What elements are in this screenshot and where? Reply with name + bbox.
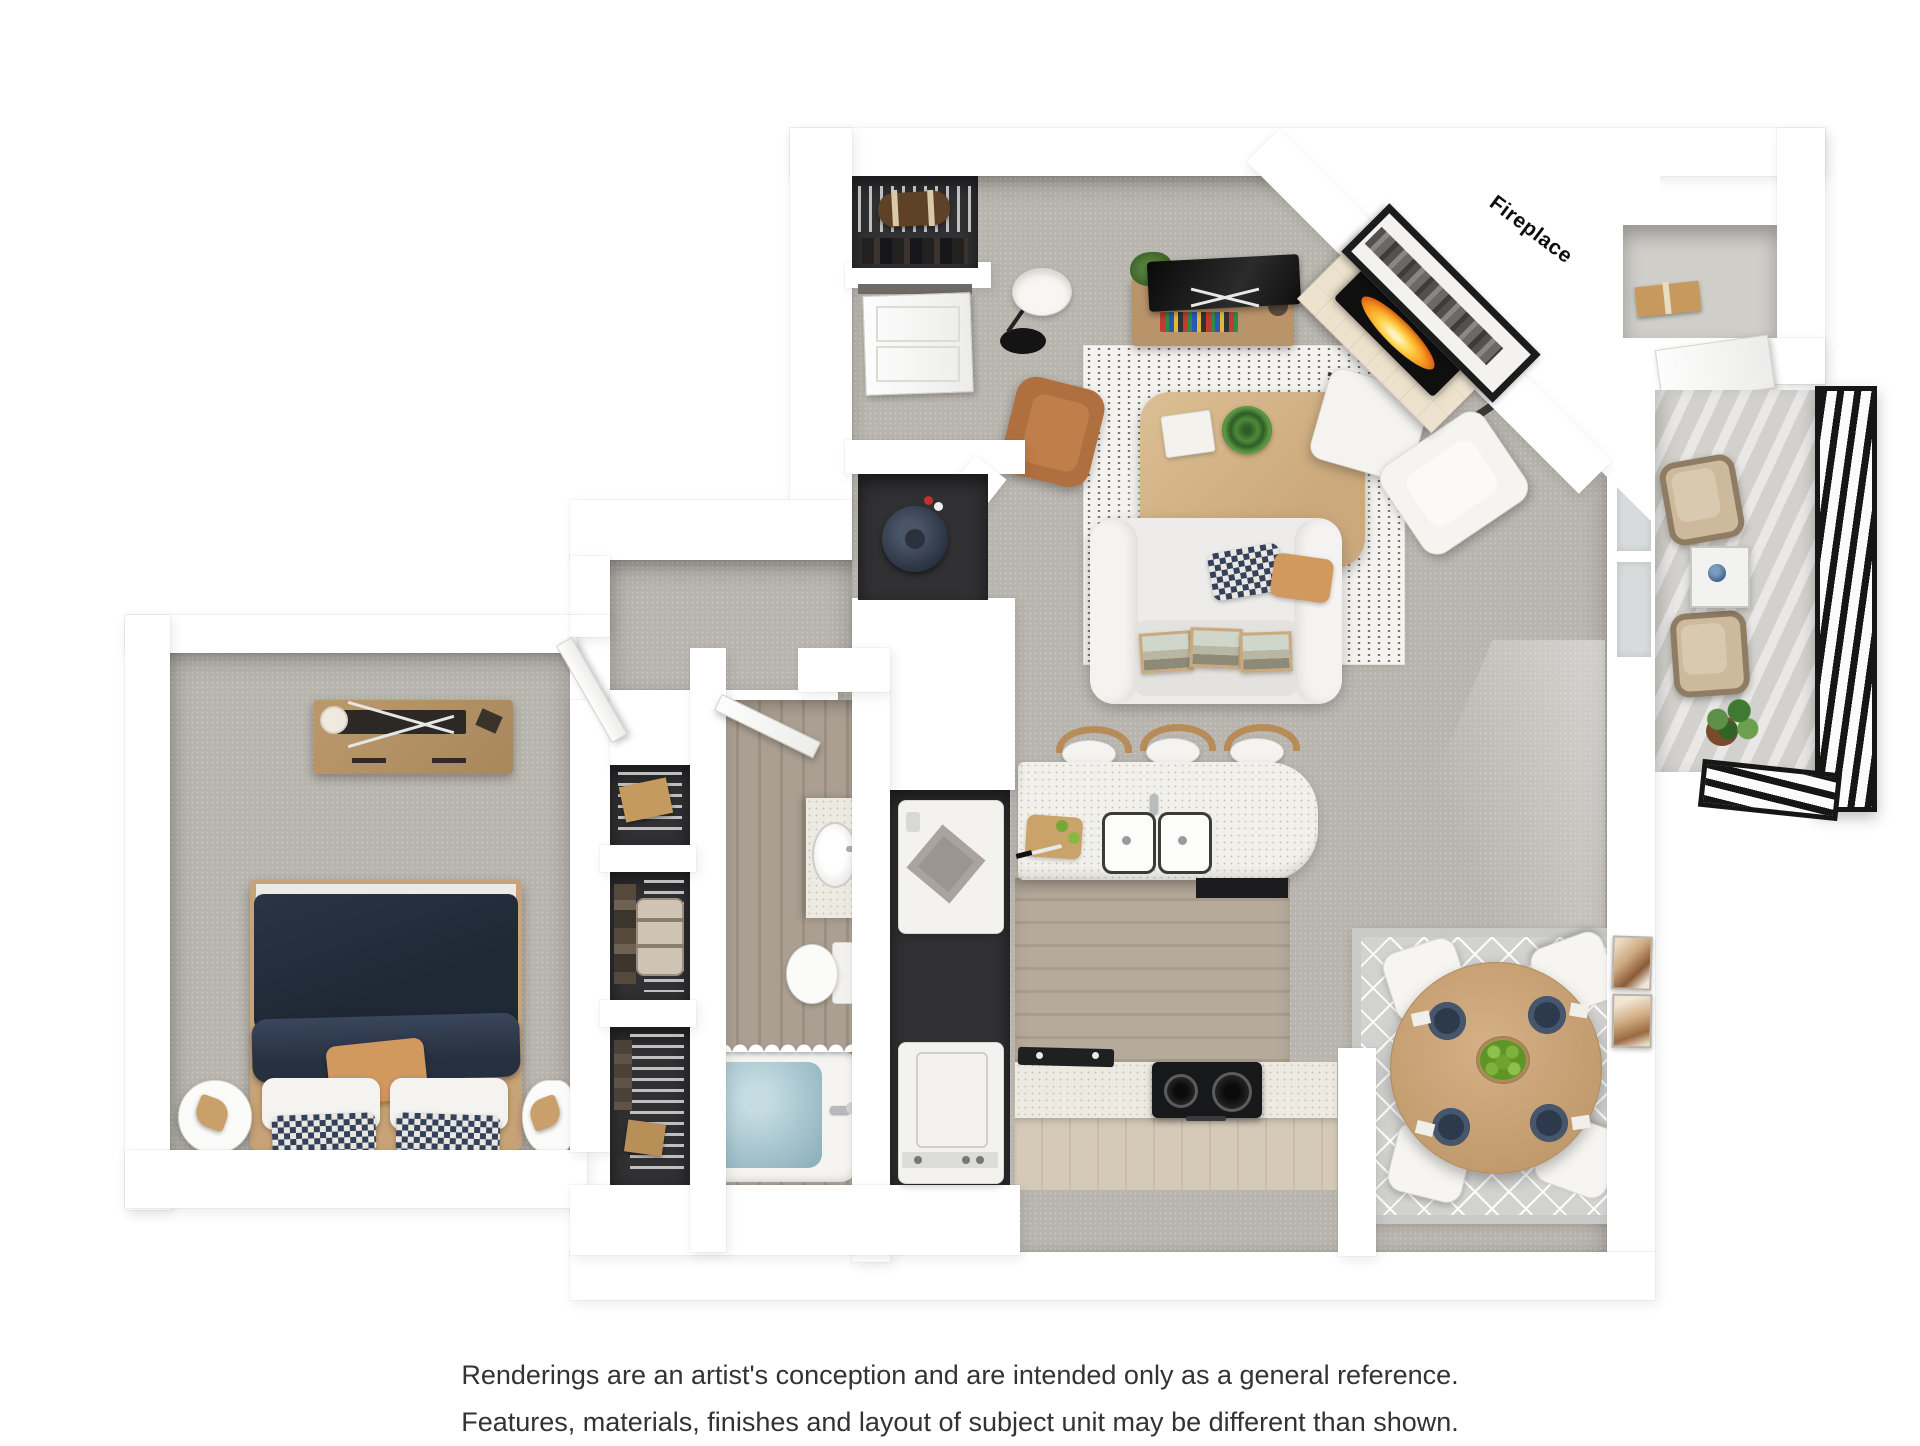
sofa-pillow-tan: [1269, 552, 1335, 604]
appliance-knob: [1092, 1052, 1099, 1059]
desk-cup: [320, 706, 348, 734]
counter-appliance: [1018, 1047, 1114, 1068]
wall-closet-bath-divider: [690, 648, 726, 1252]
dryer-dial: [976, 1156, 984, 1164]
console-books: [1160, 312, 1238, 332]
hanging-clothes: [862, 238, 968, 264]
wall-laundry-left: [852, 690, 890, 1262]
toilet-bowl: [786, 944, 838, 1004]
wall-living-left: [790, 128, 852, 508]
suitcase-strap: [636, 918, 684, 922]
storage-nook-floor: [1623, 225, 1777, 338]
wall-bath-top-right: [798, 648, 890, 692]
floor-lamp-shade: [1012, 268, 1072, 316]
duffel-bag: [877, 190, 951, 228]
disclaimer-line-1: Renderings are an artist's conception an…: [0, 1352, 1920, 1399]
sofa-arm-right: [1294, 518, 1342, 704]
dryer-door: [916, 1052, 988, 1148]
closet-suitcase: [636, 898, 684, 976]
balcony-chair-cushion: [1680, 623, 1727, 676]
lime: [1068, 832, 1080, 844]
wall-bedroom-left: [125, 615, 170, 1210]
cooktop-burner: [1164, 1074, 1198, 1108]
water-heater-valve: [934, 502, 943, 511]
sink-drain: [1122, 836, 1131, 845]
detergent-bottle: [906, 812, 920, 832]
wall-art-abstract: [1612, 994, 1653, 1049]
entry-door-panel: [876, 346, 960, 382]
balcony-table-decor: [1708, 564, 1726, 582]
floor-lamp-base: [1000, 328, 1046, 354]
wall-bedroom-top: [125, 615, 577, 653]
wall-above-hall: [570, 500, 852, 560]
coffee-table-plant: [1222, 406, 1272, 454]
wall-bed-closet-divider: [570, 700, 610, 1152]
desk-drawer-pull: [352, 758, 386, 763]
coffee-table-book: [1160, 410, 1215, 459]
living-window: [1613, 558, 1655, 661]
water-heater-valve: [924, 496, 933, 505]
sofa-photo-frame: [1139, 630, 1194, 674]
balcony-chair-cushion: [1670, 467, 1722, 524]
dryer-dial: [962, 1156, 970, 1164]
appliance-knob: [1036, 1052, 1043, 1059]
balcony-plant: [1696, 694, 1768, 750]
place-setting-plate: [1428, 1002, 1466, 1040]
wall-kitchen-dining-stub: [1338, 1048, 1376, 1256]
bed-duvet: [254, 894, 518, 1030]
hanging-clothes: [614, 884, 636, 984]
disclaimer-line-2: Features, materials, finishes and layout…: [0, 1399, 1920, 1446]
wall-closet-divider: [600, 845, 696, 872]
wall-bed-closet-divider-upper: [570, 615, 610, 637]
green-apples: [1480, 1040, 1526, 1080]
bathtub-water: [714, 1062, 822, 1168]
range-handle: [1186, 1116, 1226, 1121]
lime: [1056, 820, 1068, 832]
wall-mid-bottom: [570, 1185, 1020, 1255]
disclaimer: Renderings are an artist's conception an…: [0, 1352, 1920, 1446]
balcony-railing-right: [1815, 386, 1877, 812]
dishwasher: [1196, 878, 1288, 898]
desk-drawer-pull: [432, 758, 466, 763]
wall-closet-divider: [600, 1000, 696, 1027]
water-heater-cap: [905, 529, 925, 549]
sofa-photo-frame: [1189, 627, 1242, 669]
place-setting-plate: [1528, 996, 1566, 1034]
sofa-arm-left: [1090, 518, 1138, 704]
cooktop-burner: [1212, 1072, 1252, 1112]
closet-box: [624, 1120, 666, 1157]
sink-drain: [1178, 836, 1187, 845]
place-setting-plate: [1432, 1108, 1470, 1146]
napkin: [1571, 1115, 1591, 1130]
wall-hall-left-patch: [570, 556, 610, 618]
wall-art-abstract: [1611, 935, 1653, 990]
kitchen-cabinets: [1015, 1118, 1337, 1190]
wall-bedroom-bottom: [125, 1150, 587, 1208]
hanging-clothes: [614, 1040, 632, 1110]
place-setting-plate: [1530, 1104, 1568, 1142]
sofa-photo-frame: [1239, 631, 1292, 673]
dryer-dial: [914, 1156, 922, 1164]
wall-utility-top: [845, 440, 1025, 474]
floorplan-rendering: Fireplace: [0, 0, 1920, 1440]
wall-bottom: [570, 1252, 1655, 1300]
television: [1147, 254, 1301, 312]
island-faucet: [1150, 794, 1158, 814]
suitcase-strap: [636, 944, 684, 948]
entry-door-panel: [876, 306, 960, 342]
